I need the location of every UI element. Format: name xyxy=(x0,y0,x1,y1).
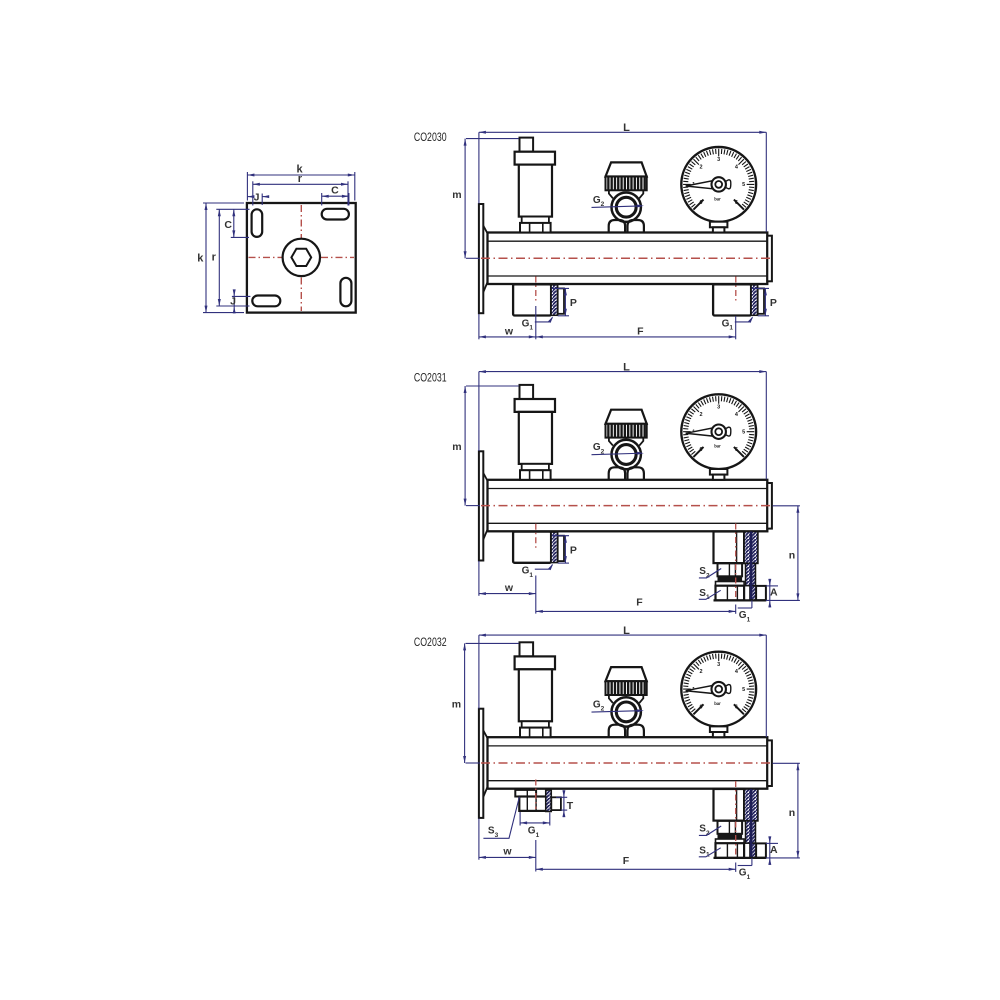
svg-text:r: r xyxy=(212,252,217,264)
svg-text:CO2031: CO2031 xyxy=(414,373,447,385)
svg-text:r: r xyxy=(298,173,303,185)
svg-text:F: F xyxy=(623,855,630,867)
svg-text:w: w xyxy=(504,582,514,594)
svg-text:L: L xyxy=(623,361,630,373)
svg-text:T: T xyxy=(567,800,574,812)
svg-text:CO2030: CO2030 xyxy=(414,132,447,144)
svg-text:w: w xyxy=(502,846,512,858)
svg-text:C: C xyxy=(331,185,339,197)
svg-text:m: m xyxy=(452,189,461,201)
svg-text:L: L xyxy=(623,122,630,134)
svg-text:m: m xyxy=(452,441,461,453)
svg-text:C: C xyxy=(224,219,232,231)
svg-text:L: L xyxy=(623,625,630,637)
svg-text:CO2032: CO2032 xyxy=(414,637,447,649)
svg-text:k: k xyxy=(197,252,204,264)
svg-text:w: w xyxy=(504,325,514,337)
svg-text:F: F xyxy=(637,325,644,337)
svg-text:J: J xyxy=(254,191,260,203)
svg-text:J: J xyxy=(230,296,236,308)
svg-text:m: m xyxy=(452,699,461,711)
svg-text:F: F xyxy=(636,596,643,608)
